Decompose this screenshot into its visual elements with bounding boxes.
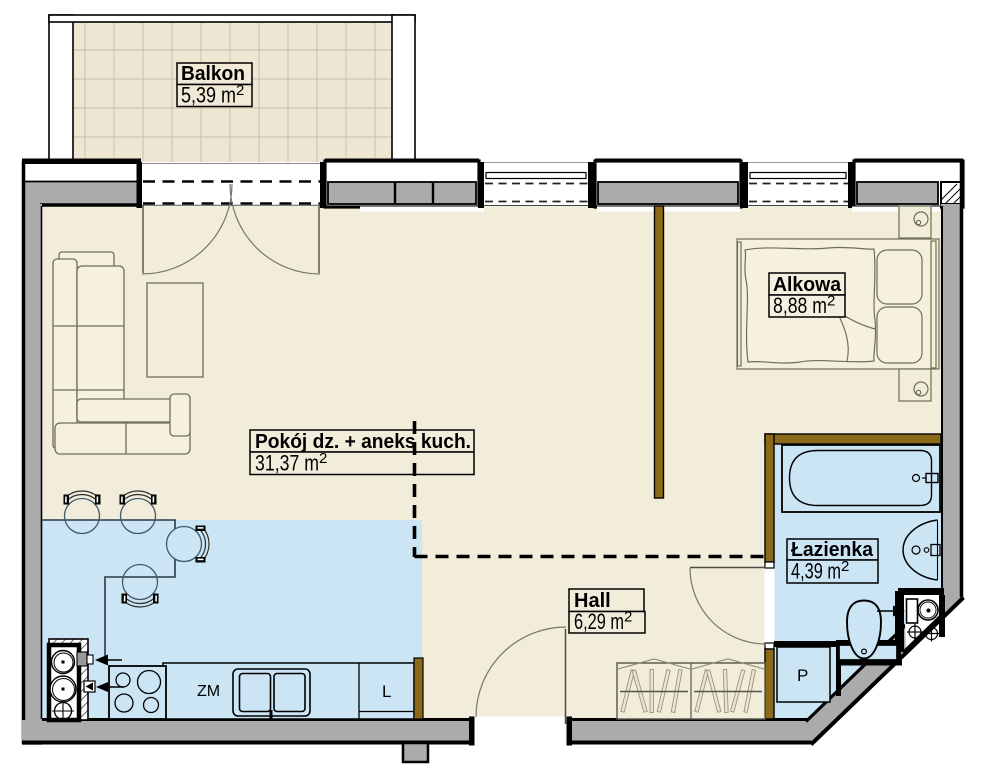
svg-text:ZM: ZM	[197, 683, 220, 700]
svg-text:5,39 m2: 5,39 m2	[181, 82, 244, 108]
svg-text:8,88 m2: 8,88 m2	[773, 293, 835, 319]
svg-text:31,37 m2: 31,37 m2	[255, 450, 327, 476]
svg-text:L: L	[382, 682, 391, 701]
svg-text:4,39 m2: 4,39 m2	[791, 558, 849, 584]
svg-text:6,29 m2: 6,29 m2	[574, 609, 632, 635]
svg-text:P: P	[797, 666, 808, 685]
